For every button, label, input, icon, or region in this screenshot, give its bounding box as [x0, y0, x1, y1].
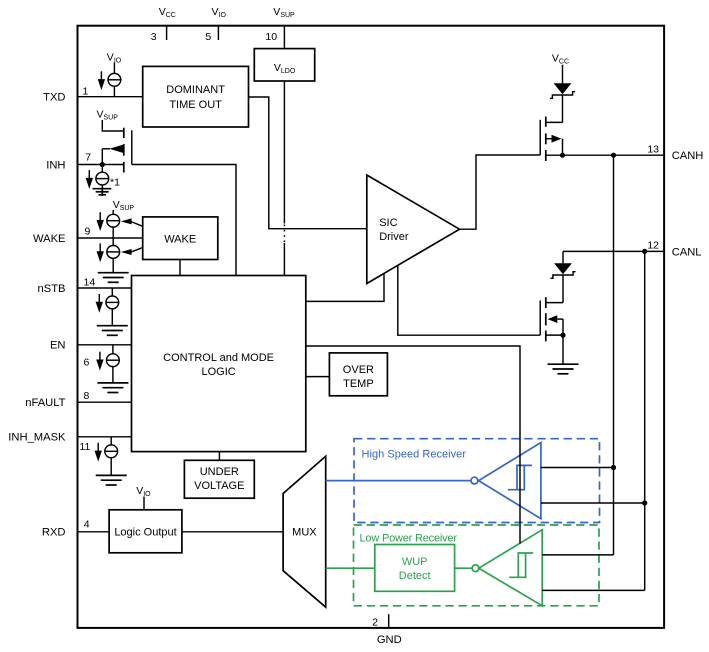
svg-text:2: 2 — [372, 617, 378, 629]
svg-text:Logic Output: Logic Output — [114, 527, 176, 539]
svg-text:8: 8 — [84, 390, 90, 402]
svg-text:GND: GND — [377, 634, 402, 646]
svg-text:1: 1 — [83, 86, 89, 98]
svg-text:5: 5 — [205, 31, 211, 43]
svg-text:EN: EN — [50, 340, 66, 352]
svg-text:WAKE: WAKE — [33, 233, 66, 245]
svg-text:WUP: WUP — [402, 556, 428, 568]
svg-text:14: 14 — [84, 276, 96, 288]
svg-text:4: 4 — [84, 519, 90, 531]
svg-text:INH_MASK: INH_MASK — [8, 432, 66, 444]
svg-text:10: 10 — [265, 31, 277, 43]
svg-text:6: 6 — [84, 357, 90, 369]
svg-text:7: 7 — [85, 152, 91, 164]
svg-text:3: 3 — [151, 31, 157, 43]
svg-text:MUX: MUX — [292, 527, 317, 539]
svg-text:Driver: Driver — [379, 231, 409, 243]
svg-text:DOMINANT: DOMINANT — [166, 84, 225, 96]
svg-text:11: 11 — [80, 441, 91, 453]
svg-text:Low Power Receiver: Low Power Receiver — [360, 532, 458, 544]
svg-text:CANL: CANL — [672, 246, 702, 258]
svg-text:13: 13 — [647, 144, 659, 156]
svg-text:*1: *1 — [110, 177, 120, 189]
svg-text:CANH: CANH — [672, 150, 704, 162]
svg-text:nSTB: nSTB — [38, 283, 66, 295]
svg-text:nFAULT: nFAULT — [25, 397, 65, 409]
svg-text:WAKE: WAKE — [164, 233, 196, 245]
svg-text:VOLTAGE: VOLTAGE — [194, 480, 244, 492]
svg-text:TEMP: TEMP — [343, 378, 374, 390]
svg-text:TXD: TXD — [43, 92, 65, 104]
svg-text:High Speed Receiver: High Speed Receiver — [362, 448, 467, 460]
svg-text:CONTROL and MODE: CONTROL and MODE — [163, 352, 274, 364]
svg-text:RXD: RXD — [42, 527, 66, 539]
svg-text:9: 9 — [85, 226, 91, 238]
svg-text:Detect: Detect — [399, 570, 431, 582]
svg-text:UNDER: UNDER — [200, 466, 239, 478]
svg-text:12: 12 — [647, 240, 659, 252]
svg-text:OVER: OVER — [343, 364, 374, 376]
svg-text:SIC: SIC — [379, 217, 397, 229]
svg-text:TIME OUT: TIME OUT — [169, 99, 222, 111]
svg-text:INH: INH — [46, 159, 65, 171]
svg-text:LOGIC: LOGIC — [201, 366, 235, 378]
